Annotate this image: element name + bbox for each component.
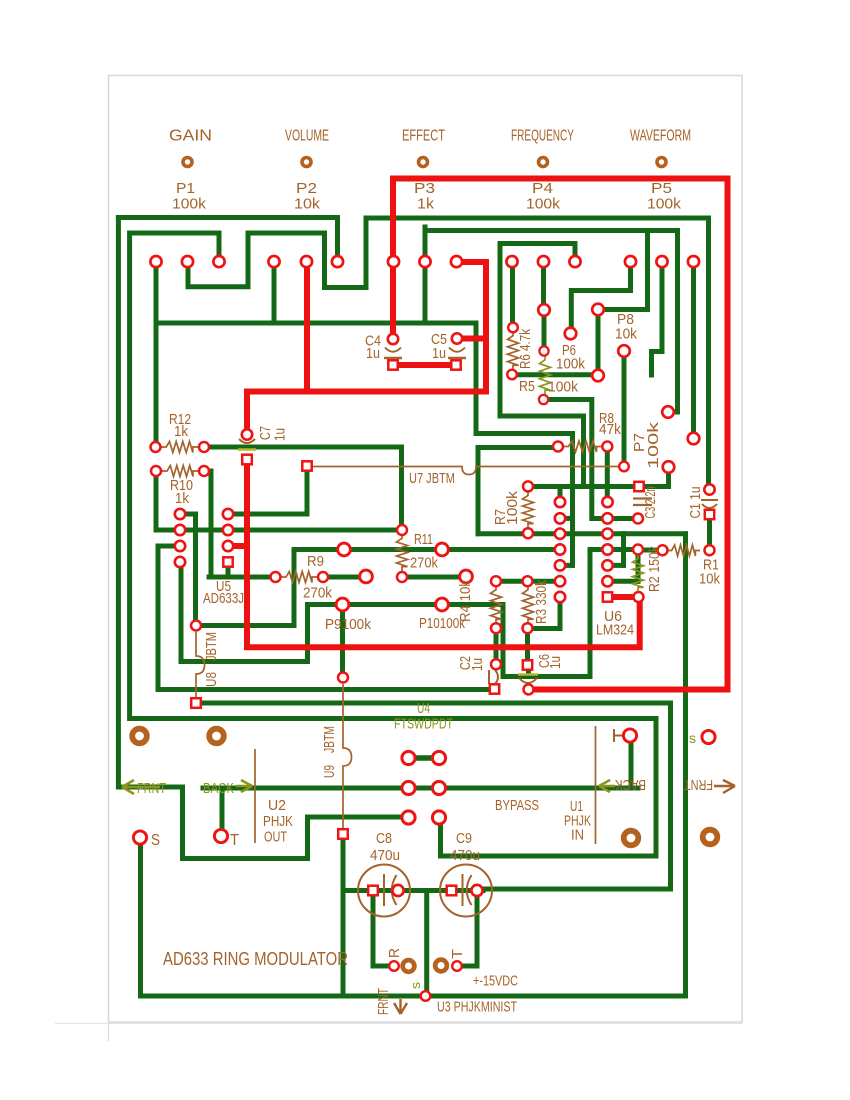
svg-text:470u: 470u bbox=[450, 848, 480, 864]
svg-text:1k: 1k bbox=[417, 197, 435, 213]
svg-text:270k: 270k bbox=[303, 586, 333, 602]
svg-text:10k: 10k bbox=[294, 197, 321, 213]
svg-text:LM324: LM324 bbox=[596, 623, 634, 639]
svg-text:P4: P4 bbox=[532, 181, 553, 197]
svg-text:P10100k: P10100k bbox=[419, 616, 466, 632]
svg-text:EFFECT: EFFECT bbox=[402, 128, 445, 145]
svg-text:+-15VDC: +-15VDC bbox=[473, 974, 518, 990]
svg-text:U8: U8 bbox=[204, 672, 220, 687]
svg-text:BACK: BACK bbox=[203, 781, 234, 797]
svg-text:100k: 100k bbox=[505, 490, 521, 525]
svg-text:100k: 100k bbox=[556, 357, 586, 373]
svg-text:C1 1u: C1 1u bbox=[688, 487, 704, 519]
svg-text:1u: 1u bbox=[366, 346, 380, 362]
svg-text:R2 150k: R2 150k bbox=[647, 545, 663, 592]
svg-text:1k: 1k bbox=[175, 491, 190, 507]
svg-text:OUT: OUT bbox=[264, 830, 287, 846]
svg-text:1u: 1u bbox=[548, 656, 564, 669]
svg-text:C9: C9 bbox=[456, 831, 472, 847]
svg-text:10k: 10k bbox=[699, 572, 721, 588]
svg-text:C8: C8 bbox=[376, 831, 392, 847]
svg-text:U4: U4 bbox=[417, 701, 430, 717]
svg-text:AD633J: AD633J bbox=[203, 591, 244, 607]
svg-text:U9: U9 bbox=[322, 765, 338, 778]
svg-text:R3 330k: R3 330k bbox=[534, 579, 550, 624]
svg-text:100k: 100k bbox=[172, 197, 207, 213]
svg-text:P1: P1 bbox=[176, 181, 195, 197]
svg-text:VOLUME: VOLUME bbox=[285, 128, 329, 145]
svg-text:BACK: BACK bbox=[615, 776, 646, 792]
svg-text:JBTM: JBTM bbox=[322, 726, 338, 753]
svg-text:WAVEFORM: WAVEFORM bbox=[630, 128, 691, 145]
svg-text:P5: P5 bbox=[651, 181, 672, 197]
svg-text:P2: P2 bbox=[296, 181, 317, 197]
svg-text:P9100k: P9100k bbox=[325, 617, 372, 633]
svg-text:P3: P3 bbox=[414, 181, 435, 197]
svg-text:100k: 100k bbox=[548, 380, 579, 396]
svg-text:GAIN: GAIN bbox=[169, 128, 212, 145]
svg-text:FRNT: FRNT bbox=[137, 781, 166, 797]
svg-text:PHJK: PHJK bbox=[263, 814, 293, 830]
svg-text:R11: R11 bbox=[414, 532, 433, 548]
svg-text:JBTM: JBTM bbox=[204, 632, 220, 661]
svg-text:FREQUENCY: FREQUENCY bbox=[511, 128, 574, 145]
svg-text:U3 PHJKMINIST: U3 PHJKMINIST bbox=[437, 1000, 517, 1016]
svg-text:AD633 RING MODULATOR: AD633 RING MODULATOR bbox=[163, 949, 348, 969]
svg-text:100k: 100k bbox=[526, 197, 561, 213]
svg-text:10k: 10k bbox=[615, 327, 638, 343]
svg-text:C3 2.2n: C3 2.2n bbox=[643, 487, 659, 519]
svg-text:R: R bbox=[387, 948, 403, 958]
svg-text:1k: 1k bbox=[174, 424, 189, 440]
svg-text:FTSWDPDT: FTSWDPDT bbox=[394, 717, 453, 733]
svg-text:T: T bbox=[230, 832, 239, 849]
svg-text:s: s bbox=[689, 730, 696, 746]
svg-text:47k: 47k bbox=[599, 422, 622, 438]
svg-text:470u: 470u bbox=[370, 848, 400, 864]
svg-text:FRNT: FRNT bbox=[376, 988, 392, 1015]
svg-text:100k: 100k bbox=[647, 197, 682, 213]
svg-text:s: s bbox=[408, 981, 423, 989]
svg-text:R9: R9 bbox=[307, 554, 324, 570]
svg-text:1u: 1u bbox=[470, 658, 486, 671]
svg-text:U2: U2 bbox=[268, 798, 286, 814]
svg-text:100k: 100k bbox=[646, 421, 662, 469]
svg-text:R6 4.7k: R6 4.7k bbox=[518, 328, 534, 369]
svg-text:1u: 1u bbox=[273, 428, 289, 441]
svg-text:R5: R5 bbox=[519, 379, 535, 395]
svg-text:BYPASS: BYPASS bbox=[495, 798, 539, 814]
svg-text:FRNT: FRNT bbox=[684, 776, 713, 792]
svg-text:270k: 270k bbox=[410, 556, 439, 572]
svg-text:1u: 1u bbox=[432, 346, 446, 362]
svg-text:T: T bbox=[450, 949, 466, 959]
svg-text:U7 JBTM: U7 JBTM bbox=[409, 471, 455, 487]
svg-text:IN: IN bbox=[571, 828, 584, 844]
svg-text:S: S bbox=[151, 832, 160, 849]
